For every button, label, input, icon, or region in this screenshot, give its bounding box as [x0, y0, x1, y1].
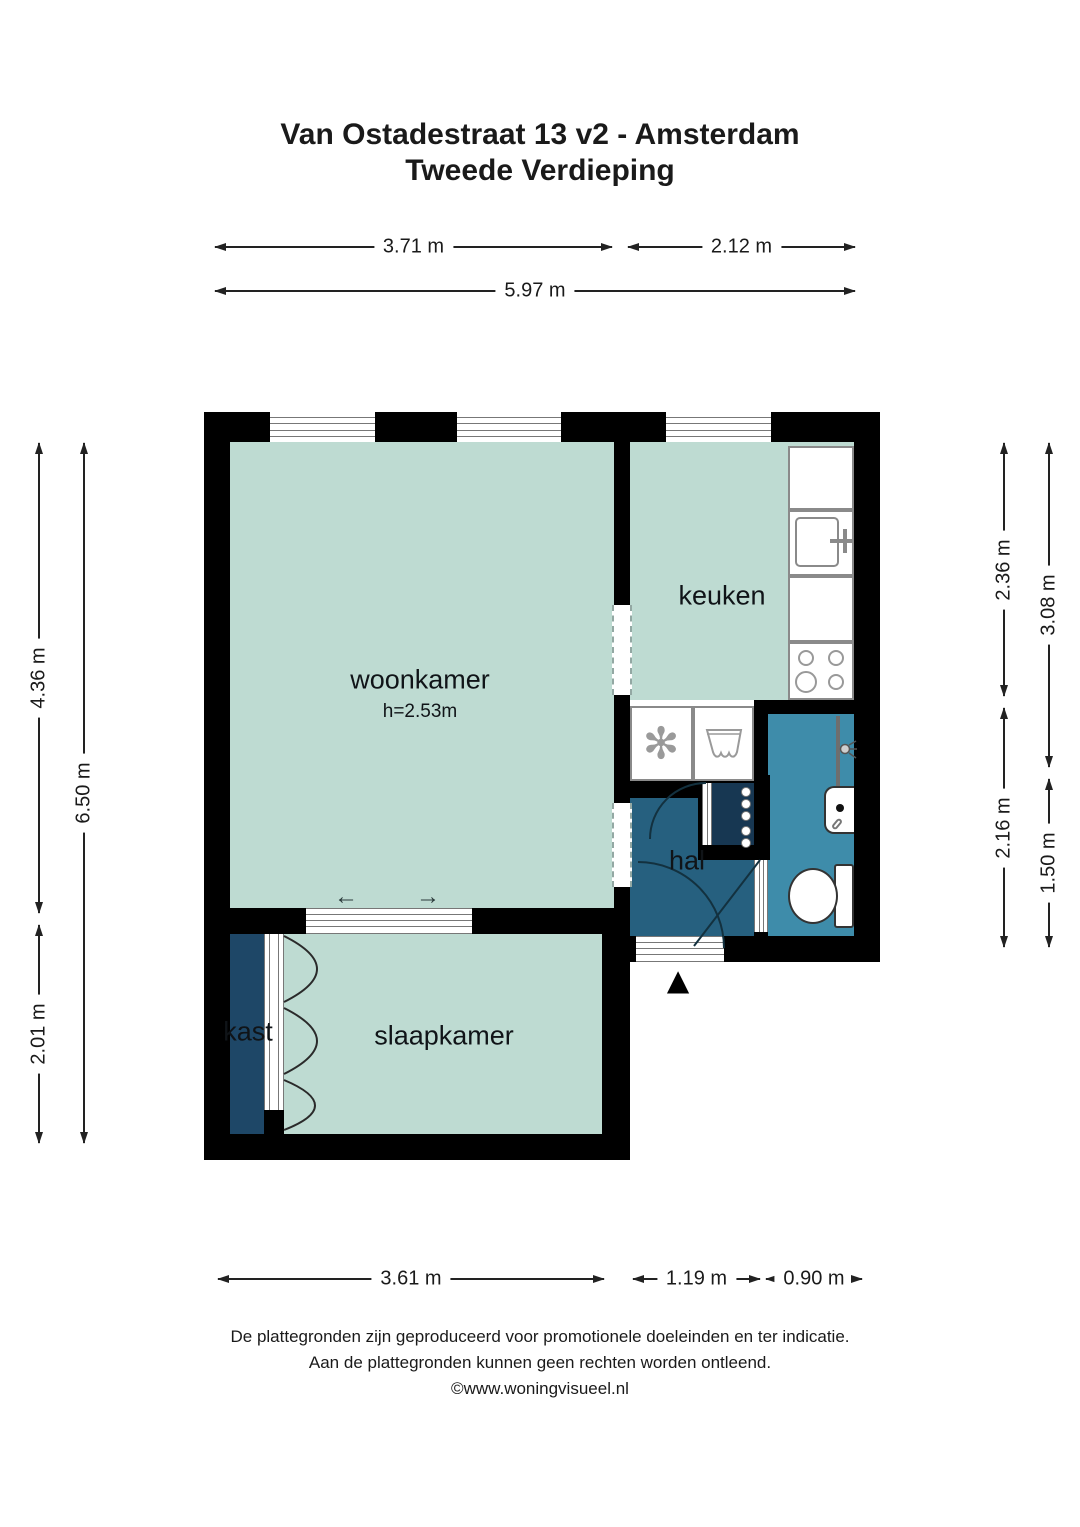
dim-bottom-middle: 1.19 m	[633, 1278, 760, 1280]
dim-left-lower: 2.01 m	[38, 925, 40, 1143]
entrance-marker-icon: ▲	[659, 961, 697, 1004]
kast-door-arc-2	[284, 1008, 317, 1074]
kast-door-arc-1	[284, 936, 317, 1002]
footer-line1: De plattegronden zijn geproduceerd voor …	[0, 1324, 1080, 1350]
label-keuken: keuken	[678, 581, 765, 612]
page-title-line1: Van Ostadestraat 13 v2 - Amsterdam	[0, 118, 1080, 152]
footer-disclaimer: De plattegronden zijn geproduceerd voor …	[0, 1324, 1080, 1402]
dim-bottom-left: 3.61 m	[218, 1278, 604, 1280]
dim-top-total: 5.97 m	[215, 290, 855, 292]
dim-top-right: 2.12 m	[628, 246, 855, 248]
label-hal: hal	[669, 846, 705, 877]
footer-line2: Aan de plattegronden kunnen geen rechten…	[0, 1350, 1080, 1376]
page-title-line2: Tweede Verdieping	[0, 154, 1080, 188]
dim-right-inner-lower: 2.16 m	[1003, 708, 1005, 947]
dim-left-upper: 4.36 m	[38, 443, 40, 913]
meterkast-door-arc	[650, 783, 706, 839]
dim-right-outer-lower: 1.50 m	[1048, 779, 1050, 947]
label-woonkamer: woonkamer	[350, 665, 490, 696]
dim-right-inner-upper: 2.36 m	[1003, 443, 1005, 696]
label-woonkamer-height: h=2.53m	[383, 701, 457, 723]
dim-left-total: 6.50 m	[83, 443, 85, 1143]
label-kast: kast	[223, 1017, 273, 1048]
dim-right-outer-upper: 3.08 m	[1048, 443, 1050, 767]
dim-top-left: 3.71 m	[215, 246, 612, 248]
floorplan-page: Van Ostadestraat 13 v2 - Amsterdam Tweed…	[0, 0, 1080, 1527]
footer-line3: ©www.woningvisueel.nl	[0, 1376, 1080, 1402]
door-swing-overlay	[200, 405, 880, 1165]
dim-bottom-right: 0.90 m	[766, 1278, 862, 1280]
label-slaapkamer: slaapkamer	[374, 1021, 514, 1052]
kast-door-arc-3	[284, 1080, 315, 1130]
